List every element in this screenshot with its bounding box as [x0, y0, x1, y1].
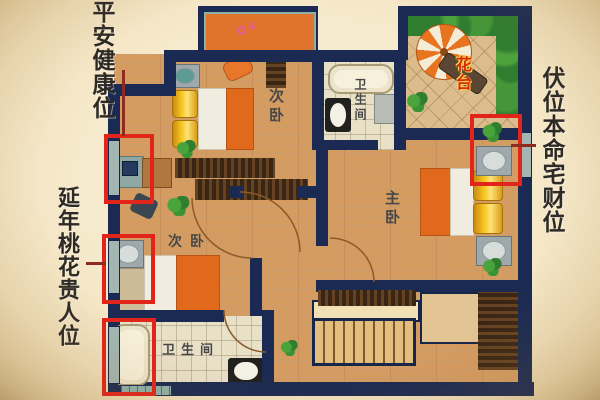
annotation-peace-health: 平安健康位 [84, 0, 118, 120]
terrace-foliage [496, 14, 520, 114]
highlight-box-wealth-position [470, 114, 522, 186]
wardrobe-long-upper [175, 158, 275, 178]
wall [298, 186, 318, 198]
nightstand-knob [175, 68, 195, 84]
wall [312, 50, 324, 150]
wall-terrace-top [398, 6, 528, 16]
connector-line-mid [86, 262, 106, 265]
toilet-bowl [234, 362, 257, 381]
bath-cabinet [374, 94, 396, 124]
bathroom-top-label: 卫生间 [352, 78, 369, 123]
wall [230, 186, 244, 198]
toilet-bottom [228, 358, 264, 384]
toilet-top [325, 98, 351, 132]
bedroom1-label: 次卧 [266, 88, 287, 126]
plant-icon [176, 140, 196, 158]
master-bed-blanket [420, 168, 452, 236]
master-pillow [473, 203, 503, 234]
cabinet-over-stairs [318, 290, 416, 306]
wardrobe-long-lower [195, 179, 308, 200]
bathroom-bottom-label: 卫生间 [162, 339, 219, 358]
bedroom2-label: 次卧 [168, 231, 212, 251]
highlight-box-peachblossom-position [102, 234, 155, 304]
staircase [312, 318, 416, 366]
highlight-box-bathtub-position [102, 318, 156, 396]
hall-panel [420, 292, 482, 344]
bed2-blanket [176, 255, 220, 313]
tall-wardrobe [478, 292, 518, 370]
toilet-bowl [330, 103, 347, 127]
wall [312, 50, 404, 62]
wall [312, 140, 378, 150]
highlight-box-health-position [104, 134, 154, 204]
stair-treads [315, 321, 413, 363]
wall-master-left [316, 150, 328, 246]
flower-decor-icon: ✿⚘ [234, 19, 260, 39]
wall [250, 258, 262, 316]
wall [164, 50, 334, 62]
plant-icon [166, 196, 190, 216]
wall [518, 6, 532, 130]
annotation-wealth-position: 伏位本命宅财位 [534, 66, 568, 234]
master-bedroom-label: 主卧 [382, 190, 403, 228]
bed1-sheet [198, 88, 228, 150]
fengshui-floorplan-image: ✿⚘ [0, 0, 600, 400]
connector-line-right [511, 144, 536, 147]
plant-icon [280, 340, 298, 356]
plant-icon [482, 258, 502, 276]
terrace-label: 花台 [450, 56, 474, 92]
bush-icon [406, 92, 428, 112]
wall-bath-bottom-right [262, 310, 274, 386]
connector-line-top [122, 70, 125, 136]
bed1-blanket [226, 88, 254, 150]
annotation-longevity-peachblossom: 延年桃花贵人位 [50, 186, 82, 347]
